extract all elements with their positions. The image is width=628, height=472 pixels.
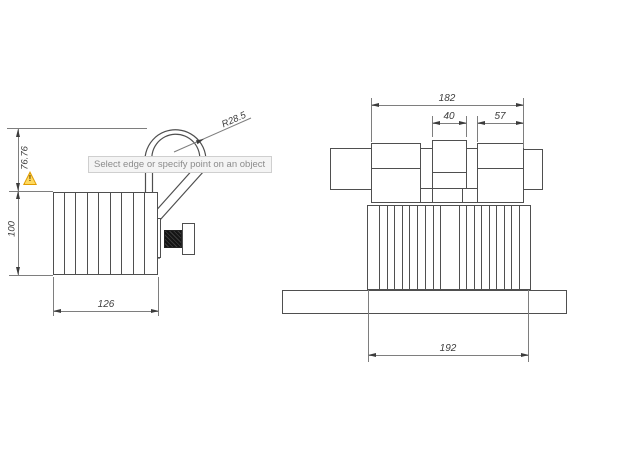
- status-tooltip: Select edge or specify point on an objec…: [88, 156, 272, 173]
- radius-arrowhead: [196, 139, 204, 144]
- center-block-side-right: [466, 172, 467, 189]
- rib-line: [379, 206, 380, 289]
- drawing-canvas[interactable]: R28.5 76.76 100 1: [0, 0, 628, 472]
- dimension-label-body-height: 100: [7, 221, 18, 237]
- rib-line: [504, 206, 505, 289]
- head-bottom-line: [420, 202, 478, 203]
- dimension-line: [53, 311, 159, 312]
- rib-line: [459, 206, 460, 289]
- extension-line-left: [477, 116, 478, 142]
- rib-line: [474, 206, 475, 289]
- rib-line: [409, 206, 410, 289]
- rib-line: [98, 193, 99, 274]
- dimension-line: [371, 105, 524, 106]
- rib-line: [496, 206, 497, 289]
- rib-line: [489, 206, 490, 289]
- extension-line-right: [528, 290, 529, 362]
- head-block-left: [371, 143, 421, 203]
- arrow-left: [53, 309, 61, 313]
- extension-line-left: [368, 290, 369, 362]
- rib-line: [440, 206, 441, 289]
- rib-line: [387, 206, 388, 289]
- arrow-left: [368, 353, 376, 357]
- base-bar: [282, 290, 567, 314]
- arrow-left: [432, 121, 440, 125]
- warning-icon: !: [23, 171, 37, 185]
- rib-line: [519, 206, 520, 289]
- rib-line: [433, 206, 434, 289]
- rib-line: [64, 193, 65, 274]
- arrow-left: [477, 121, 485, 125]
- arrow-up: [16, 129, 20, 137]
- head-block-left-divider: [371, 168, 421, 169]
- channel-top-left: [420, 148, 432, 149]
- extension-line-left: [432, 116, 433, 137]
- head-block-right: [477, 143, 524, 203]
- channel-top-right: [466, 148, 477, 149]
- cylinder-housing-strip: [157, 218, 161, 258]
- dimension-label-body-width: 126: [98, 299, 115, 310]
- rib-line: [481, 206, 482, 289]
- rib-line: [394, 206, 395, 289]
- key-cylinder-hatched: [164, 230, 182, 248]
- arrow-down: [16, 267, 20, 275]
- left-ear: [330, 148, 372, 190]
- dimension-label-base-width: 192: [440, 343, 457, 354]
- arrow-right: [516, 121, 524, 125]
- arrow-left: [371, 103, 379, 107]
- rib-line: [87, 193, 88, 274]
- arrow-right: [151, 309, 159, 313]
- rib-line: [133, 193, 134, 274]
- rib-line: [75, 193, 76, 274]
- rib-line: [144, 193, 145, 274]
- band-divider-right: [462, 188, 463, 203]
- padlock-body-front: [367, 205, 531, 290]
- extension-line-right: [466, 116, 467, 137]
- rib-line: [425, 206, 426, 289]
- extension-line-bottom: [9, 275, 53, 276]
- padlock-body-side: [53, 192, 158, 275]
- channel-bottom: [420, 188, 478, 189]
- dimension-label-shackle-height: 76.76: [20, 146, 31, 170]
- rib-line: [121, 193, 122, 274]
- dimension-label-center-width: 40: [443, 111, 454, 122]
- rib-line: [110, 193, 111, 274]
- rib-line: [511, 206, 512, 289]
- arrow-right: [459, 121, 467, 125]
- rib-line: [402, 206, 403, 289]
- key-knob: [182, 223, 195, 255]
- dimension-label-side-block-width: 57: [494, 111, 505, 122]
- dimension-label-overall-width: 182: [439, 93, 456, 104]
- arrow-right: [516, 103, 524, 107]
- warning-exclamation: !: [23, 174, 37, 183]
- extension-line-top: [7, 128, 147, 129]
- rib-line: [417, 206, 418, 289]
- right-ear: [522, 149, 543, 190]
- rib-line: [466, 206, 467, 289]
- arrow-up: [16, 191, 20, 199]
- arrow-down: [16, 183, 20, 191]
- dimension-line: [368, 355, 529, 356]
- center-block: [432, 140, 467, 173]
- head-block-right-divider: [477, 168, 524, 169]
- arrow-right: [521, 353, 529, 357]
